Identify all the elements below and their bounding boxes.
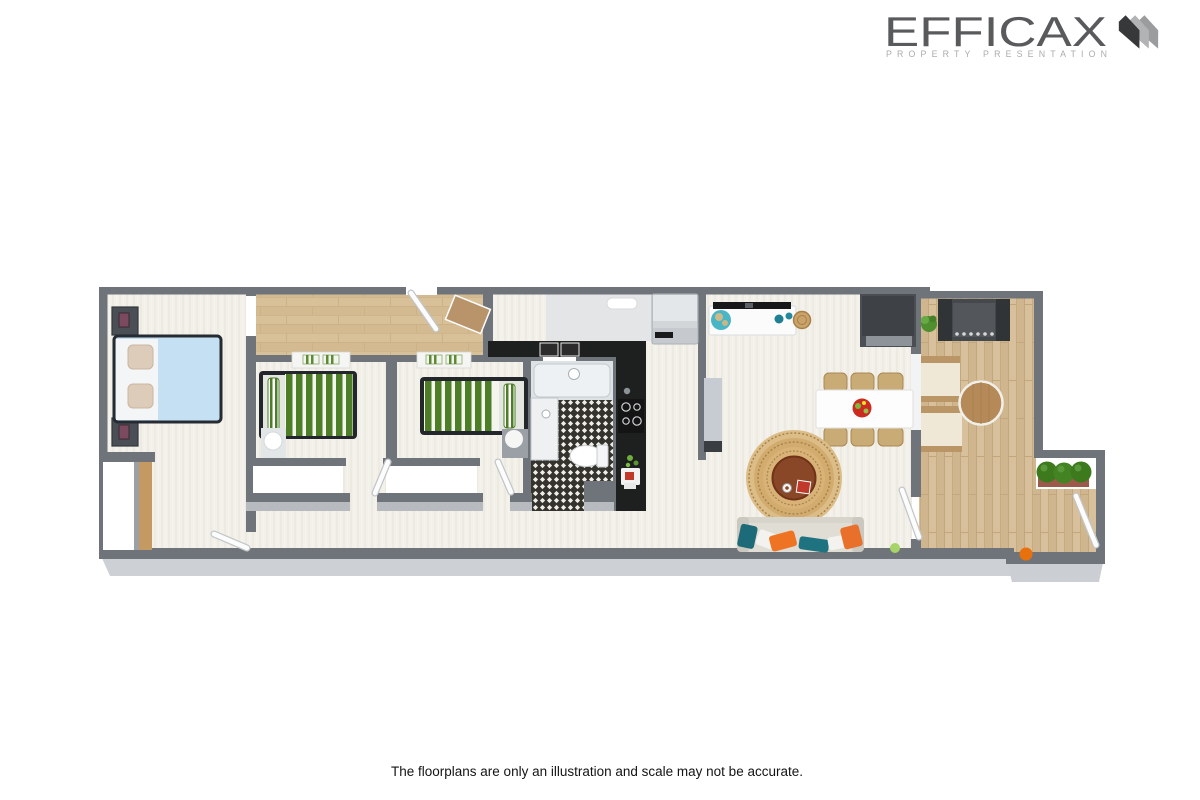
svg-text:EFFICAX: EFFICAX [884, 8, 1107, 55]
svg-text:The floorplans are only an ill: The floorplans are only an illustration … [391, 764, 803, 779]
